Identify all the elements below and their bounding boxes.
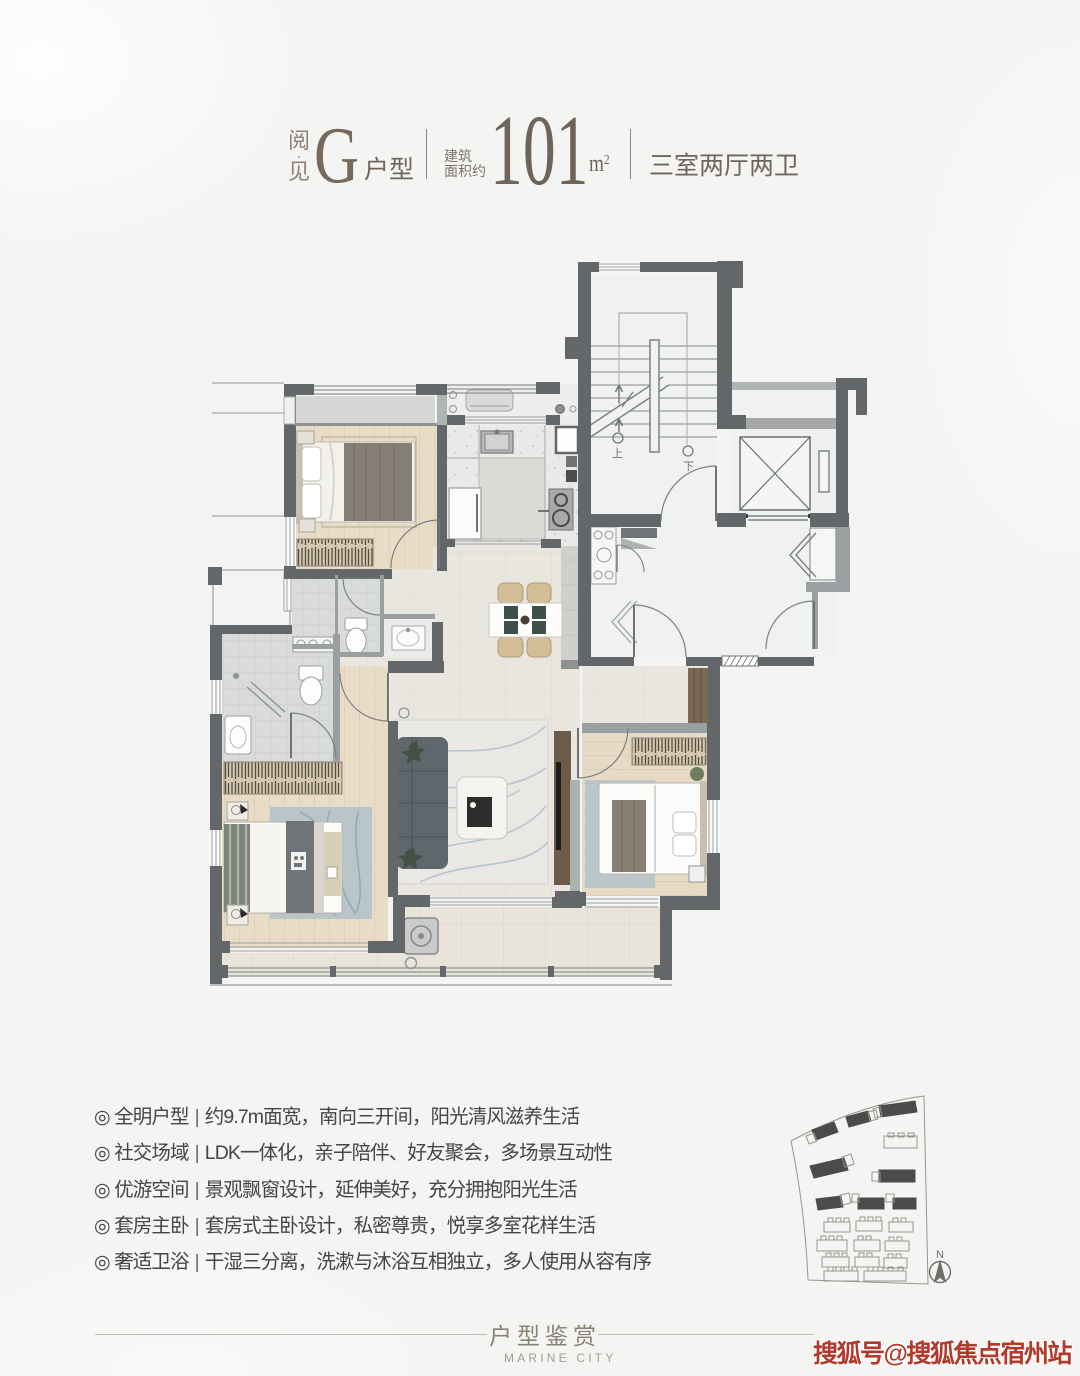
svg-text:N: N (936, 1249, 944, 1261)
svg-text:上: 上 (612, 447, 623, 460)
